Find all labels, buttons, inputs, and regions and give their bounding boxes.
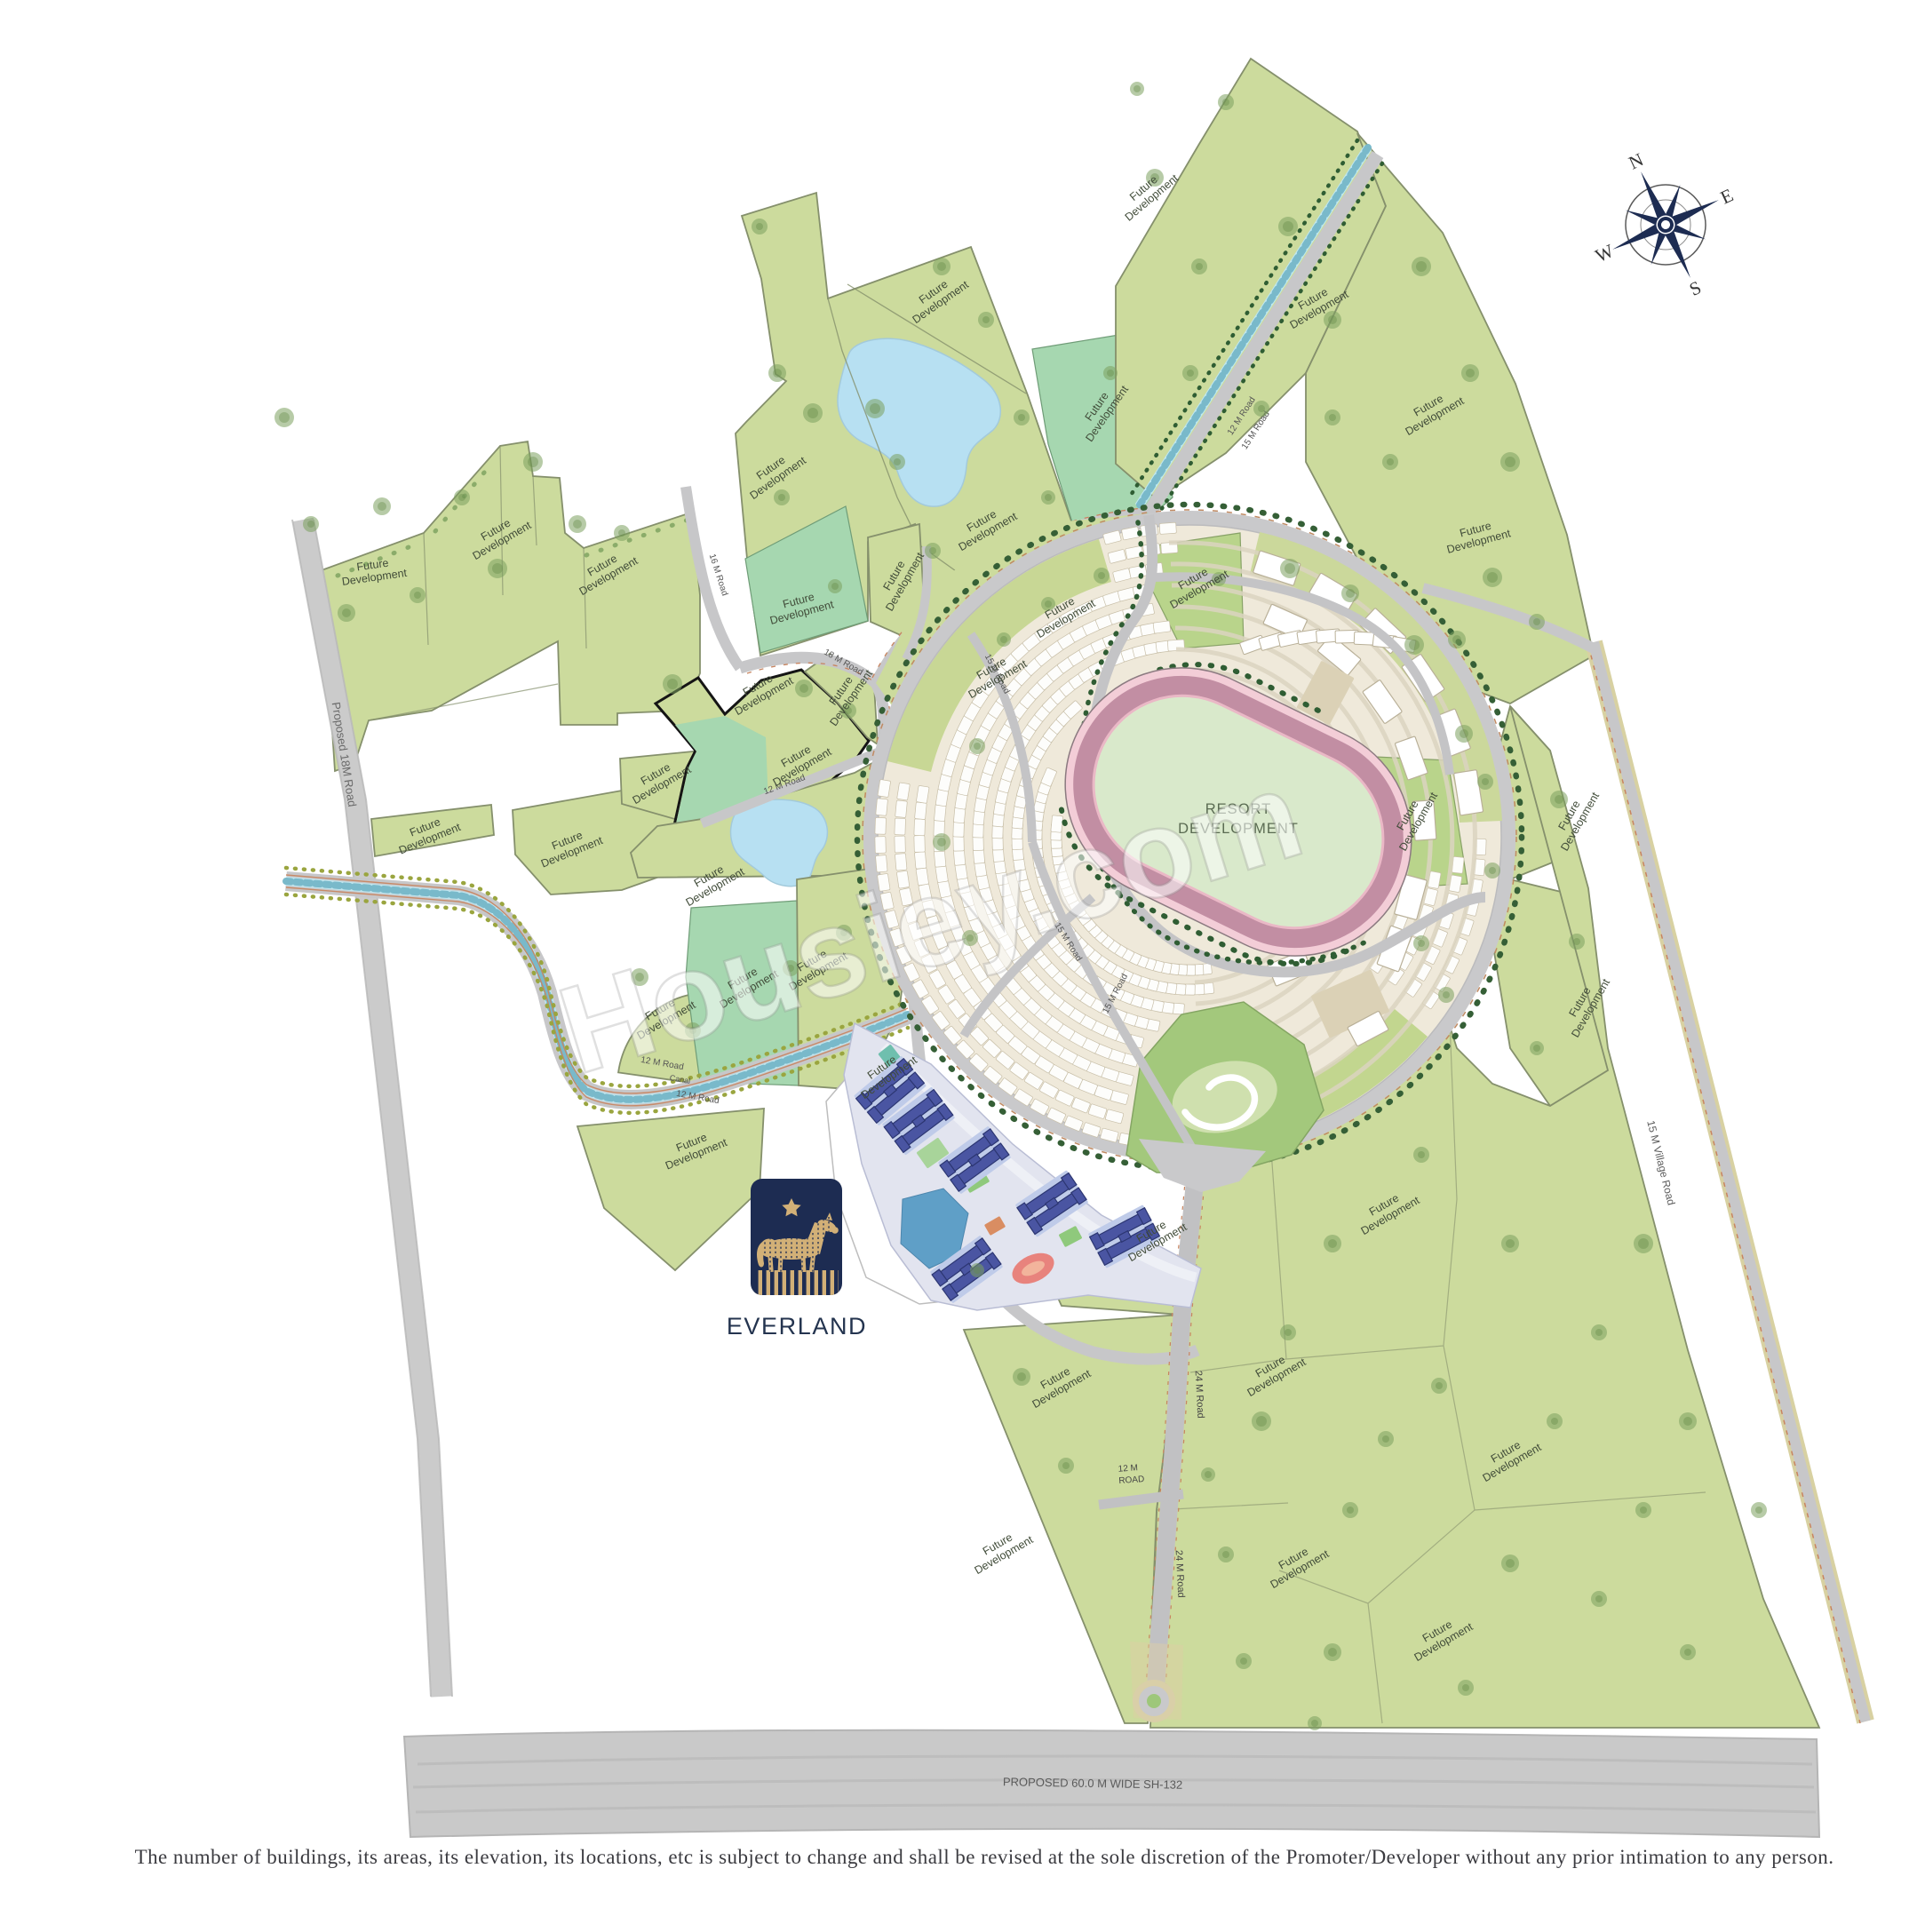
svg-text:The number of buildings, its a: The number of buildings, its areas, its … xyxy=(135,1846,1834,1868)
svg-text:EVERLAND: EVERLAND xyxy=(727,1313,867,1340)
svg-text:ROAD: ROAD xyxy=(1118,1475,1145,1486)
svg-text:12 M: 12 M xyxy=(1118,1463,1138,1475)
